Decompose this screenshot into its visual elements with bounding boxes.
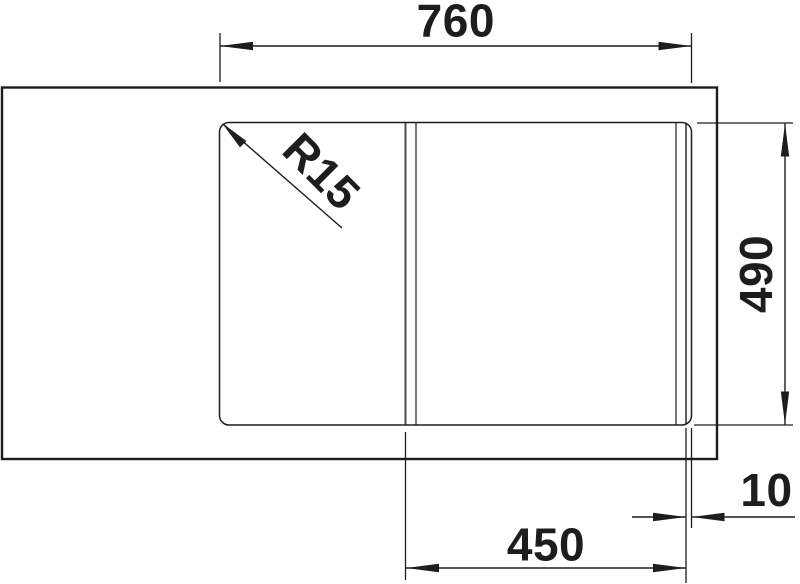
corner-radius-label: R15 bbox=[273, 123, 371, 221]
dimension-overall-depth: 490 bbox=[694, 123, 793, 425]
arrowhead-top-icon bbox=[781, 124, 789, 157]
leader-arrowhead-icon bbox=[222, 123, 246, 147]
corner-radius-callout: R15 bbox=[222, 123, 370, 228]
arrowhead-left-icon bbox=[406, 564, 439, 572]
dimension-value-overall-width: 760 bbox=[417, 0, 495, 47]
dimension-value-overall-depth: 490 bbox=[730, 235, 782, 313]
dimension-bowl-edge-offset: 10 bbox=[632, 428, 795, 528]
sink-outer-outline bbox=[2, 88, 717, 460]
dimension-bowl-width: 450 bbox=[406, 428, 687, 583]
arrowhead-right-icon bbox=[653, 564, 686, 572]
dimension-overall-width: 760 bbox=[220, 0, 692, 83]
arrowhead-inward-left-icon bbox=[653, 513, 686, 521]
arrowhead-left-icon bbox=[220, 42, 253, 50]
technical-drawing-canvas: 760 490 R15 450 bbox=[0, 0, 800, 584]
sink-dimension-diagram: 760 490 R15 450 bbox=[0, 0, 800, 584]
arrowhead-bottom-icon bbox=[781, 392, 789, 425]
dimension-value-bowl-edge-offset: 10 bbox=[740, 464, 792, 516]
arrowhead-right-icon bbox=[659, 42, 692, 50]
arrowhead-inward-right-icon bbox=[692, 513, 725, 521]
dimension-value-bowl-width: 450 bbox=[507, 519, 585, 571]
